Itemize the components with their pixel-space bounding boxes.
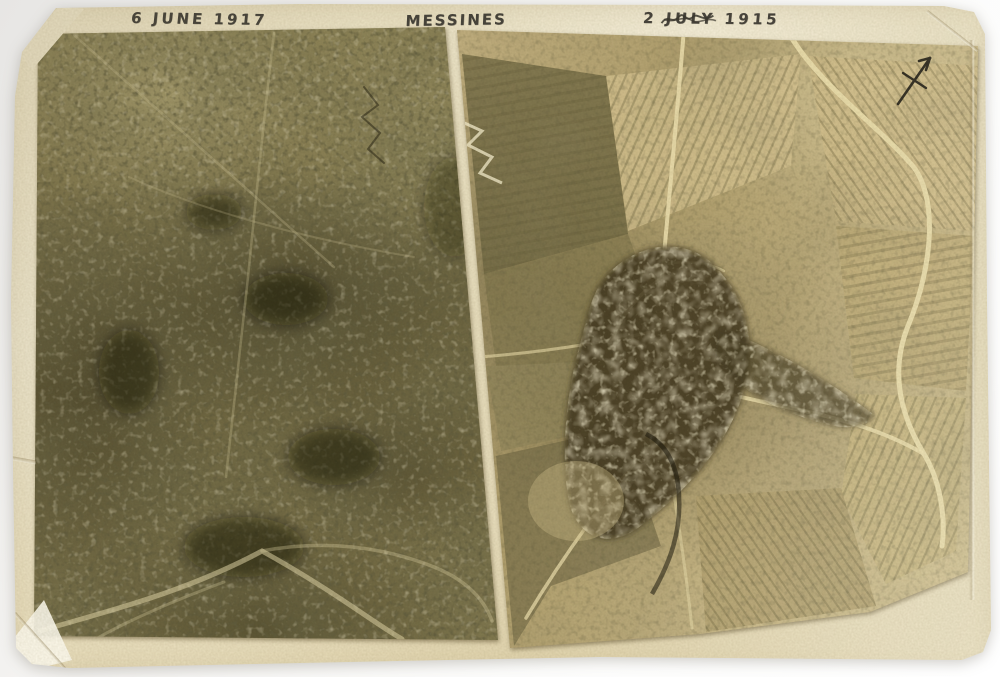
caption-left-date: 6 JUNE 1917 <box>130 9 268 29</box>
scanned-photo-print: 6 JUNE 1917 MESSINES 2 JULY 1915 <box>0 0 1000 677</box>
north-arrow-icon <box>888 44 944 110</box>
ink-scribble-overwrite <box>658 10 722 29</box>
aerial-photo-july-1915 <box>456 26 984 651</box>
right-photo-wrapper <box>0 0 1000 677</box>
caption-right-date: 2 JULY 1915 <box>642 9 781 28</box>
photo-card-wrapper: 6 JUNE 1917 MESSINES 2 JULY 1915 <box>0 0 1000 677</box>
caption-place-name: MESSINES <box>405 10 507 30</box>
photo-print-card: 6 JUNE 1917 MESSINES 2 JULY 1915 <box>0 0 1000 677</box>
village-and-fields-graphic <box>456 26 984 651</box>
southwest-building-cluster <box>528 461 624 541</box>
